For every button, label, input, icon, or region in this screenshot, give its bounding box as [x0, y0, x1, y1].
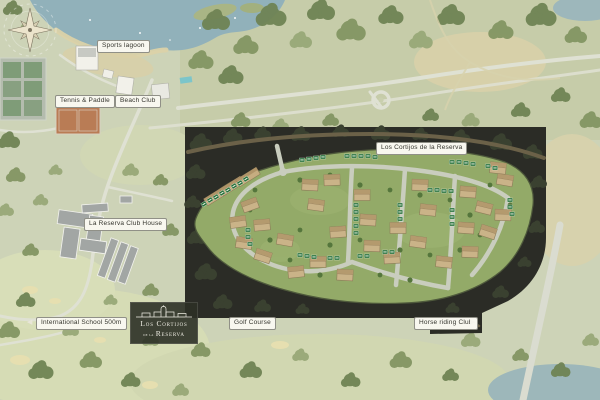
tennis-courts: [56, 107, 100, 134]
paddle-courts: [0, 58, 46, 120]
label-beach-club: Beach Club: [115, 95, 161, 108]
label-golf-course: Golf Course: [229, 317, 276, 330]
label-international-school: International School 500m: [36, 317, 127, 330]
cortijo-skyline-icon: [134, 305, 194, 318]
logo-line2: de la Reserva: [143, 329, 185, 338]
inset-title-label: Los Cortijos de la Reserva: [376, 142, 467, 155]
base-map-art: [0, 0, 600, 400]
estate-road-junction: [279, 168, 287, 176]
masterplan-map: Sports lagoon Tennis & Paddle Beach Club…: [0, 0, 600, 400]
logo-line2-prefix: de la: [143, 332, 154, 337]
label-club-house: La Reserva Club House: [84, 218, 167, 231]
logo-line2-main: Reserva: [156, 329, 185, 338]
development-logo: Los Cortijos de la Reserva: [130, 302, 198, 344]
school-direction-arrow-icon: ◀: [27, 319, 32, 326]
label-horse-riding-club: Horse riding Club: [414, 317, 478, 330]
logo-line1: Los Cortijos: [140, 319, 187, 328]
horse-riding-direction-arrow-icon: ▶: [470, 319, 475, 326]
label-tennis-paddle: Tennis & Paddle: [55, 95, 115, 108]
inset-site-plan: [184, 124, 547, 334]
label-sports-lagoon: Sports lagoon: [97, 40, 150, 53]
